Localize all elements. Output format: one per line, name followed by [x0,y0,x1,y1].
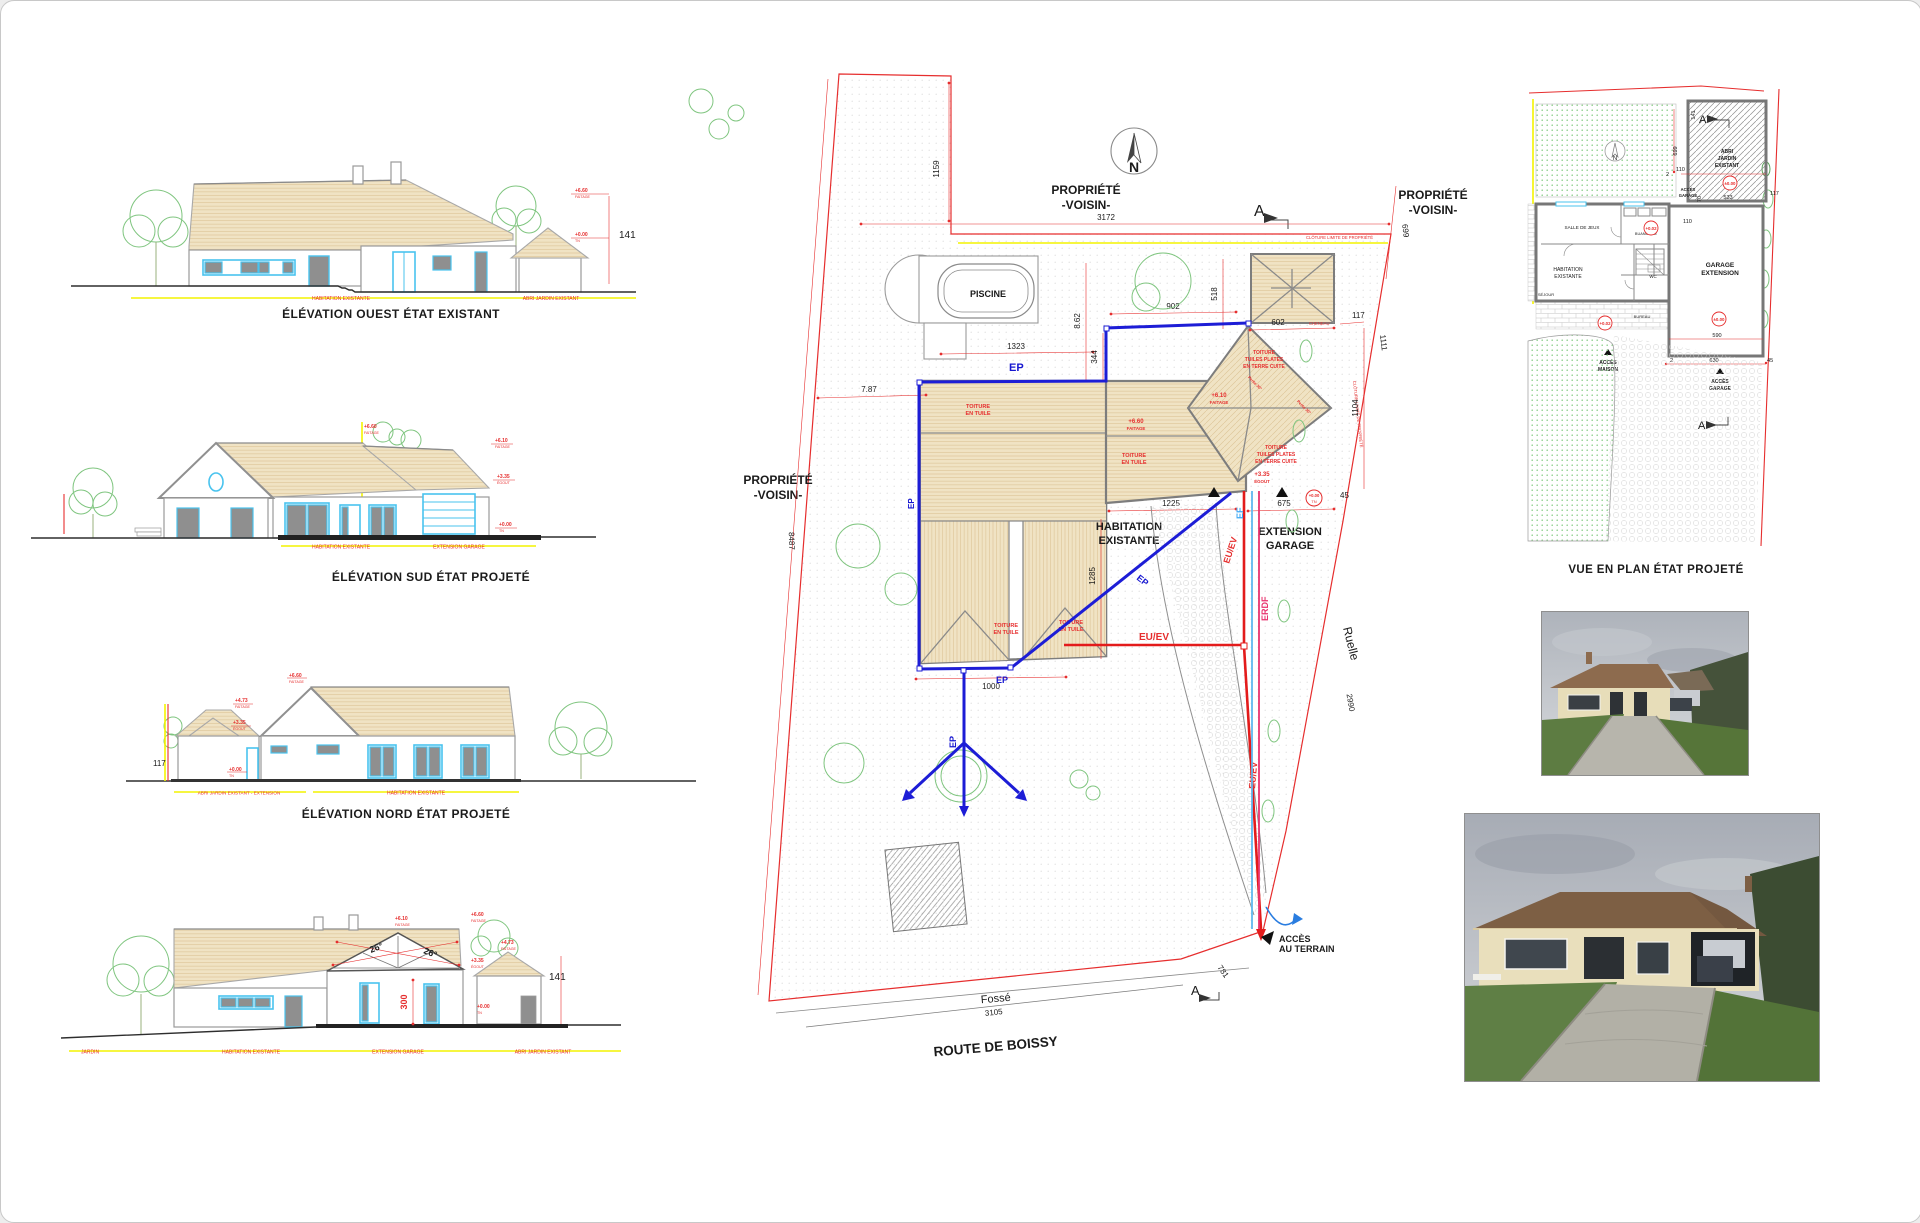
svg-text:Fossé: Fossé [980,992,1011,1007]
svg-text:FAITAGE: FAITAGE [501,947,517,951]
svg-text:FAITAGE: FAITAGE [364,431,380,435]
svg-text:+3.35: +3.35 [497,474,510,480]
caption-elevation-south: ÉLÉVATION SUD ÉTAT PROJETÉ [201,570,661,584]
svg-text:+3.35: +3.35 [471,958,484,964]
chimney [391,162,401,184]
door [309,256,329,286]
svg-text:+0.02: +0.02 [1599,321,1611,326]
svg-text:CLÔTURE LIMITE DE PROPRIÉTÉ: CLÔTURE LIMITE DE PROPRIÉTÉ [1306,235,1373,240]
svg-text:EF: EF [1235,507,1245,519]
plan-driveway [1606,335,1762,544]
svg-text:EP: EP [907,498,916,509]
svg-text:FAITAGE: FAITAGE [235,705,251,709]
photo-small [1541,611,1749,776]
svg-text:7.87: 7.87 [861,385,877,394]
drawing-sheet: +6.60 FAITAGE +0.00 TN 141 HABITATION EX… [0,0,1920,1223]
svg-text:EN TUILE: EN TUILE [993,630,1018,636]
svg-text:+0.00: +0.00 [499,522,512,528]
svg-text:±0.00: ±0.00 [1725,181,1737,186]
svg-text:2: 2 [1666,172,1669,178]
garage-door [423,494,475,534]
svg-text:TN: TN [229,774,234,778]
svg-text:A: A [1699,114,1707,126]
svg-text:GARAGE: GARAGE [1679,193,1698,198]
svg-text:+0.00: +0.00 [575,232,588,238]
svg-text:1285: 1285 [1088,567,1097,585]
svg-text:EP: EP [948,736,958,748]
svg-text:+6.60: +6.60 [471,912,484,918]
annex-wall [519,258,581,292]
svg-text:FAITAGE: FAITAGE [471,919,487,923]
svg-text:+6.10: +6.10 [495,438,508,444]
svg-text:TOITURE: TOITURE [1122,453,1146,459]
svg-text:699: 699 [1673,146,1679,155]
elevation-west-drawing: +6.60 FAITAGE +0.00 TN 141 HABITATION EX… [61,136,641,321]
svg-text:902: 902 [1166,302,1180,311]
svg-text:3172: 3172 [1097,213,1115,222]
svg-text:3105: 3105 [984,1007,1003,1018]
svg-text:Ruelle: Ruelle [1340,625,1362,662]
svg-text:PROPRIÉTÉ: PROPRIÉTÉ [743,472,812,487]
svg-text:+6.60: +6.60 [575,188,588,194]
svg-text:N: N [1613,156,1617,162]
svg-text:+6.10: +6.10 [1211,393,1227,399]
svg-text:ACCÈS: ACCÈS [1681,187,1696,192]
svg-text:300: 300 [399,994,409,1009]
bottom-labels: HABITATION EXISTANTE ABRI JARDIN EXISTAN… [131,296,636,302]
svg-text:FAITAGE: FAITAGE [1127,426,1146,431]
caption-elevation-north: ÉLÉVATION NORD ÉTAT PROJETÉ [176,807,636,821]
svg-text:EN TUILE: EN TUILE [965,411,990,417]
elevation-south-drawing: +6.60 FAITAGE +6.10 FAITAGE +3.35 ÉGOUT … [31,416,691,591]
svg-text:EN TUILE: EN TUILE [1121,460,1146,466]
svg-text:±0.00: ±0.00 [1714,317,1726,322]
svg-text:1159: 1159 [932,160,941,178]
svg-text:518: 518 [1210,287,1219,301]
caption-elevation-west: ÉLÉVATION OUEST ÉTAT EXISTANT [161,307,621,321]
plan-lawn [1528,335,1615,541]
svg-text:PROPRIÉTÉ: PROPRIÉTÉ [1398,187,1467,202]
svg-text:ACCÈS: ACCÈS [1279,934,1311,944]
svg-text:TN: TN [499,529,504,533]
svg-text:344: 344 [1090,350,1099,364]
access-terrain: ACCÈS AU TERRAIN [1261,931,1335,954]
svg-text:+0.00: +0.00 [1309,493,1320,498]
svg-text:+6.60: +6.60 [364,424,377,430]
svg-text:+6.60: +6.60 [1128,419,1144,425]
svg-text:ÉGOUT: ÉGOUT [471,964,485,969]
svg-text:ERDF: ERDF [1260,596,1270,621]
svg-text:+4.73: +4.73 [501,940,514,946]
chimney [314,917,323,930]
flow-arrow-icon [1266,907,1296,925]
svg-text:EN TERRE CUITE: EN TERRE CUITE [1255,459,1297,465]
svg-text:A: A [1698,420,1706,432]
svg-text:-VOISIN-: -VOISIN- [754,488,803,502]
svg-text:GARAGE: GARAGE [1266,540,1314,552]
svg-text:ÉGOUT: ÉGOUT [1254,479,1270,484]
svg-text:110: 110 [1676,167,1685,173]
svg-text:JARDIN: JARDIN [1718,156,1737,162]
svg-text:ÉGOUT: ÉGOUT [497,480,511,485]
site-plan: N PROPRIÉTÉ -VOISIN- PROPRIÉTÉ -VOISIN- … [606,51,1466,1091]
svg-text:EXISTANTE: EXISTANTE [1554,274,1582,280]
svg-text:1323: 1323 [1007,342,1025,351]
svg-text:PISCINE: PISCINE [970,289,1006,299]
svg-text:ROUTE DE BOISSY: ROUTE DE BOISSY [933,1034,1058,1060]
svg-text:BUREAU: BUREAU [1634,314,1651,319]
svg-text:PROPRIÉTÉ: PROPRIÉTÉ [1051,182,1120,197]
svg-text:FAITAGE: FAITAGE [289,680,305,684]
svg-text:JARDIN: JARDIN [81,1050,99,1056]
bottom-labels: ABRI JARDIN EXISTANT - EXTENSION HABITAT… [174,791,519,797]
svg-text:-VOISIN-: -VOISIN- [1062,198,1111,212]
svg-text:EP: EP [1009,362,1024,374]
svg-text:WC: WC [1649,274,1656,279]
svg-text:GARAGE: GARAGE [1706,262,1735,269]
svg-text:+4.73: +4.73 [235,698,248,704]
svg-text:FAITAGE: FAITAGE [1210,400,1229,405]
svg-text:ABRI JARDIN EXISTANT: ABRI JARDIN EXISTANT [515,1050,572,1056]
svg-text:2990: 2990 [1344,693,1356,713]
svg-text:117: 117 [1352,311,1365,320]
round-window [209,473,223,491]
svg-text:141: 141 [1691,110,1697,119]
svg-text:8.62: 8.62 [1073,313,1082,329]
chimney [353,166,363,184]
svg-text:FAITAGE: FAITAGE [575,195,591,199]
photo-large [1464,813,1820,1082]
svg-text:TOITURE: TOITURE [1265,445,1288,451]
svg-text:590: 590 [1712,333,1721,339]
chimney [349,915,358,930]
svg-text:EXISTANT: EXISTANT [1715,163,1739,169]
svg-text:SÉJOUR: SÉJOUR [1538,292,1554,297]
svg-text:+0.00: +0.00 [477,1004,490,1010]
svg-text:TUILES PLATES: TUILES PLATES [1245,357,1284,363]
svg-text:FAITAGE: FAITAGE [495,445,511,449]
svg-text:45: 45 [1767,358,1773,364]
svg-text:HABITATION EXISTANTE: HABITATION EXISTANTE [312,296,371,302]
svg-text:HABITATION EXISTANTE: HABITATION EXISTANTE [387,791,446,797]
house-walls [1536,204,1669,301]
svg-text:+3.35: +3.35 [1254,472,1270,478]
svg-text:TN: TN [477,1011,482,1015]
svg-text:110: 110 [1683,219,1692,225]
svg-text:A: A [1191,983,1200,998]
svg-text:EXTENSION: EXTENSION [1701,270,1739,277]
svg-text:N: N [1129,159,1139,175]
section-marker-bottom: A [1191,983,1219,1002]
svg-text:EU/EV: EU/EV [1139,632,1169,643]
svg-text:TN: TN [1311,499,1316,504]
svg-text:8487: 8487 [787,532,797,551]
svg-text:+0.02: +0.02 [1645,226,1657,231]
svg-text:HABITATION EXISTANTE: HABITATION EXISTANTE [312,545,371,551]
svg-text:TOITURE: TOITURE [1253,350,1276,356]
svg-text:675: 675 [1277,499,1291,508]
svg-text:EXTENSION GARAGE: EXTENSION GARAGE [433,545,485,551]
svg-text:1111: 1111 [1378,334,1389,352]
svg-text:EXISTANTE: EXISTANTE [1099,535,1160,547]
svg-text:AU TERRAIN: AU TERRAIN [1279,944,1335,954]
svg-text:+6.10: +6.10 [395,916,408,922]
svg-text:699: 699 [1400,224,1411,239]
bottom-labels: HABITATION EXISTANTE EXTENSION GARAGE [281,545,536,551]
roof [189,180,513,250]
svg-text:117: 117 [1770,191,1779,197]
svg-text:FAITAGE: FAITAGE [395,923,411,927]
svg-text:ABRI: ABRI [1721,149,1734,155]
ground-slab [278,535,541,540]
svg-text:TN: TN [575,239,580,243]
svg-text:TUILES PLATES: TUILES PLATES [1257,452,1296,458]
svg-text:EN TERRE CUITE: EN TERRE CUITE [1243,364,1285,370]
svg-text:EXTENSION GARAGE: EXTENSION GARAGE [372,1050,424,1056]
svg-text:HABITATION EXISTANTE: HABITATION EXISTANTE [222,1050,281,1056]
floor-plan: N ABRI JARDIN EXISTANT ±0.00 A SALLE DE … [1516,79,1816,579]
svg-text:A: A [1254,203,1265,220]
tn-level: +0.00 TN [1306,490,1322,506]
svg-text:70: 70 [1697,196,1703,202]
section-marker-top: A [1254,203,1288,229]
hatched-area [885,842,967,931]
svg-text:117: 117 [153,759,166,768]
svg-text:ÉGOUT: ÉGOUT [233,726,247,731]
svg-text:EP: EP [996,675,1008,685]
svg-text:TOITURE: TOITURE [994,623,1018,629]
svg-text:SALLE DE JEUX: SALLE DE JEUX [1565,225,1600,230]
svg-text:TOITURE: TOITURE [966,404,990,410]
svg-text:ABRI JARDIN EXISTANT: ABRI JARDIN EXISTANT [523,296,580,302]
svg-text:602: 602 [1271,318,1285,327]
svg-text:HABITATION: HABITATION [1553,267,1583,273]
svg-text:CHENEAU: CHENEAU [1309,321,1329,326]
svg-text:141: 141 [549,972,566,983]
bottom-labels: JARDIN HABITATION EXISTANTE EXTENSION GA… [69,1050,621,1056]
caption-floor-plan: VUE EN PLAN ÉTAT PROJETÉ [1521,564,1791,576]
svg-text:1104: 1104 [1351,399,1360,417]
svg-text:45: 45 [1340,491,1349,500]
svg-text:ABRI JARDIN EXISTANT - EXTENSI: ABRI JARDIN EXISTANT - EXTENSION [198,791,281,796]
svg-text:+3.35: +3.35 [233,720,246,726]
svg-text:781: 781 [1216,964,1231,981]
north-arrow-icon: N [1111,128,1157,175]
section-drawing: 26° 26° 300 141 +6.10 FAITAGE +6.60 FAIT… [61,896,661,1111]
svg-text:533: 533 [1723,195,1732,201]
svg-text:-VOISIN-: -VOISIN- [1409,203,1458,217]
